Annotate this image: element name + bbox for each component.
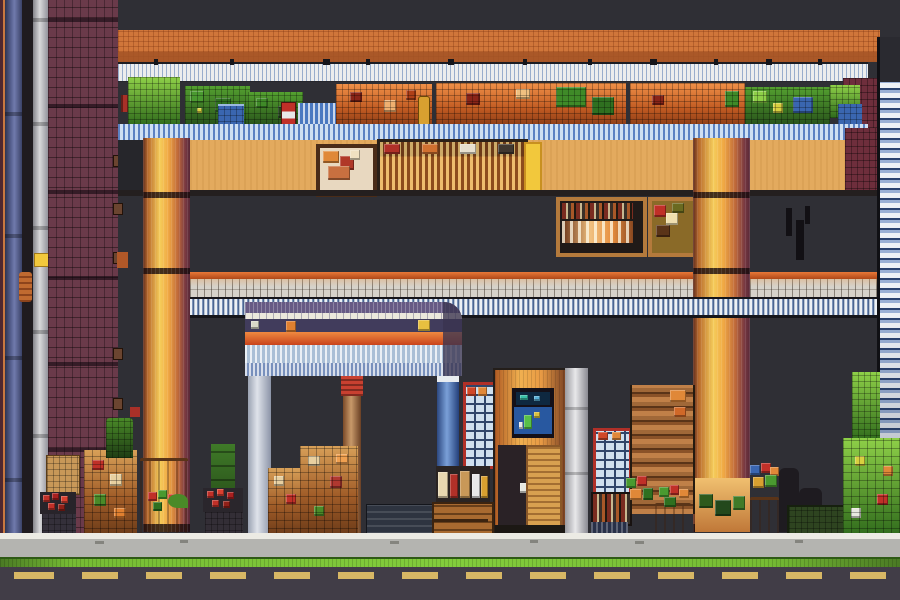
sidewalk-tick bbox=[530, 540, 538, 543]
bird-mark bbox=[366, 59, 370, 65]
cabinet-upper-screen[interactable] bbox=[516, 392, 550, 405]
bird-mark bbox=[323, 59, 330, 65]
orange-hand-sprite bbox=[19, 272, 32, 302]
orange-crate-stack bbox=[84, 450, 137, 537]
cabinet-main-screen[interactable] bbox=[514, 407, 552, 434]
bird-mark bbox=[714, 59, 718, 65]
bottle-row bbox=[562, 221, 633, 243]
berry-crate bbox=[40, 492, 76, 514]
wall-scribble bbox=[796, 220, 804, 260]
mosaic-box bbox=[648, 197, 699, 257]
kiosk-red-band bbox=[245, 332, 462, 345]
wall-knob bbox=[113, 348, 123, 360]
kiosk-blue-slats bbox=[245, 345, 462, 363]
green-produce-panel bbox=[128, 77, 180, 126]
kiosk-pillar-center-cap bbox=[341, 376, 363, 396]
yellow-block bbox=[34, 253, 49, 267]
bird-mark bbox=[766, 59, 772, 65]
bird-mark bbox=[448, 59, 454, 65]
gold-column-right bbox=[693, 138, 750, 532]
red-mark bbox=[130, 407, 140, 417]
sidewalk-tick bbox=[635, 541, 644, 544]
lit-base-wall bbox=[695, 478, 750, 532]
vending-cabinet[interactable] bbox=[493, 368, 568, 537]
sidewalk-tick bbox=[795, 540, 803, 543]
book-bottle-shelf bbox=[556, 197, 647, 257]
produce-on-barrel bbox=[658, 483, 690, 509]
kiosk-slat-frieze bbox=[245, 363, 462, 376]
kiosk-dark-band bbox=[245, 319, 462, 332]
dark-bench bbox=[366, 504, 438, 535]
kiosk-canopy bbox=[245, 302, 462, 376]
column-joint bbox=[693, 268, 750, 274]
bottle-row-crate bbox=[436, 466, 490, 502]
produce-stack-large bbox=[300, 446, 358, 537]
column-joint bbox=[143, 268, 190, 274]
sidewalk-tick bbox=[180, 540, 188, 543]
orange-produce-pile-right bbox=[630, 83, 745, 126]
crossbeam-orange-trim bbox=[190, 272, 877, 279]
foliage-stack-right bbox=[843, 438, 900, 537]
dark-green-plant bbox=[106, 418, 133, 458]
kiosk-right-cap bbox=[443, 302, 462, 376]
lane-dashed-line bbox=[0, 572, 900, 579]
green-produce-pile-right bbox=[745, 87, 830, 126]
bird-mark bbox=[650, 59, 657, 65]
bird-mark bbox=[154, 59, 158, 65]
bird-mark bbox=[230, 59, 234, 65]
produce-on-barrel bbox=[748, 463, 781, 501]
sidewalk-tick bbox=[95, 541, 104, 544]
wall-bottle-shelf bbox=[377, 139, 528, 193]
crate-seam bbox=[434, 519, 488, 522]
orange-mark bbox=[117, 252, 128, 268]
orange-tiled-awning bbox=[118, 30, 880, 62]
blue-slat-crates bbox=[298, 103, 336, 126]
produce-cubes-shelf bbox=[624, 476, 658, 514]
pane-tower-left bbox=[463, 382, 497, 469]
sidewalk-tick bbox=[390, 541, 399, 544]
wall-knob bbox=[113, 398, 123, 410]
maroon-wall-lower bbox=[845, 128, 877, 196]
game-viewport[interactable] bbox=[0, 0, 900, 600]
blind-tower-cap bbox=[880, 37, 900, 82]
crossbeam-brick-row bbox=[190, 279, 877, 298]
wall-scribble bbox=[805, 206, 810, 224]
blue-crate-right bbox=[838, 104, 862, 126]
tan-crate bbox=[46, 455, 80, 495]
column-joint bbox=[143, 192, 190, 198]
bird-mark bbox=[588, 59, 592, 65]
white-pillar bbox=[565, 368, 588, 537]
column-joint bbox=[693, 192, 750, 198]
yellow-door-panel[interactable] bbox=[524, 142, 542, 193]
book-row bbox=[562, 203, 633, 219]
leaf-sprig bbox=[168, 494, 188, 508]
wall-left-gap bbox=[118, 140, 143, 196]
bird-mark bbox=[818, 59, 822, 65]
white-slat-fascia bbox=[118, 62, 868, 82]
warm-crate bbox=[268, 468, 303, 537]
wall-bottom-line bbox=[118, 190, 880, 196]
bird-mark bbox=[523, 59, 527, 65]
cabinet-door[interactable] bbox=[526, 445, 562, 529]
wall-knob bbox=[113, 203, 123, 215]
foliage-stack-mid bbox=[852, 372, 880, 442]
cabinet-dark-panel bbox=[498, 445, 526, 525]
orange-green-produce-pile bbox=[436, 83, 626, 126]
wall-scribble bbox=[786, 208, 792, 236]
berry-crate bbox=[203, 488, 243, 512]
